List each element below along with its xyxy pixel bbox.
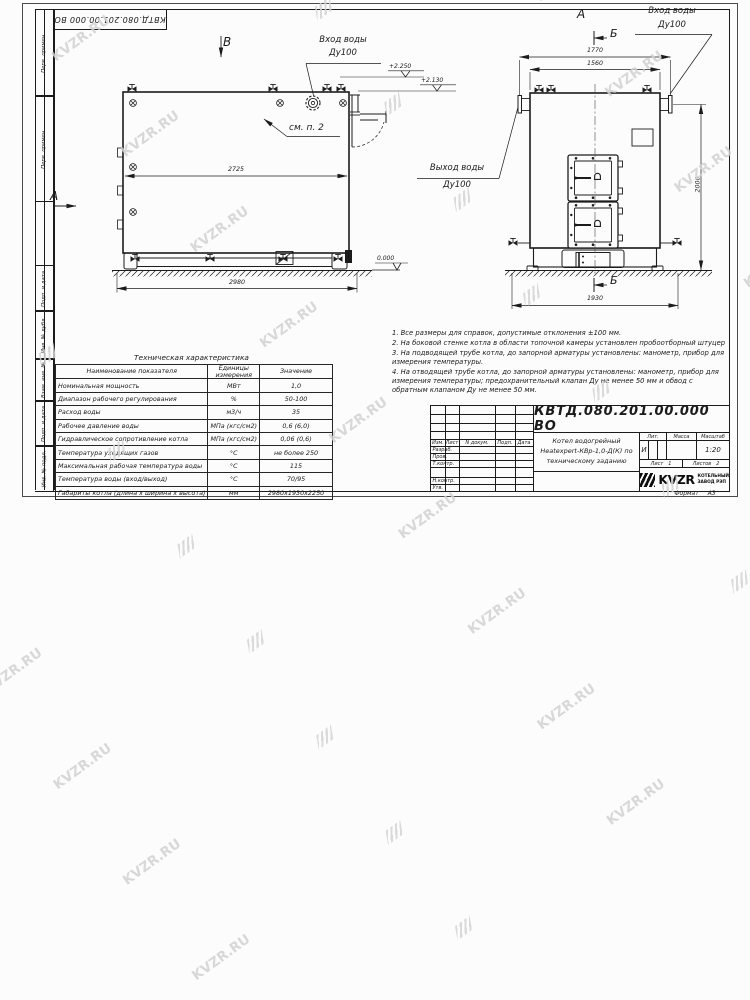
tb-scale-label: Масштаб xyxy=(696,433,729,441)
tb-product-name: Котел водогрейный Heatexpert-КВр-1,0-Д(К… xyxy=(533,433,639,471)
inlet-label-front-2: Ду100 xyxy=(633,20,711,30)
inlet-label-side-2: Ду100 xyxy=(305,48,381,58)
watermark-text: KVZR.RU xyxy=(465,585,529,638)
tb-vline xyxy=(495,406,496,491)
title-block: Изм. Лист N докум. Подп. Дата Разраб. Пр… xyxy=(430,405,730,492)
section-marker-b-bottom: Б xyxy=(610,274,618,287)
tb-hline xyxy=(431,414,533,415)
tb-sheets-cell: Листов2 xyxy=(682,459,729,467)
tb-hline xyxy=(431,467,533,468)
tb-company-cell: KVZR КОТЕЛЬНЫЙ ЗАВОД РЭП xyxy=(639,467,729,491)
tb-col-data: Дата xyxy=(515,439,533,446)
engineering-drawing-sheet: { "watermark": { "text": "KVZR.RU" }, "f… xyxy=(0,0,750,500)
tb-doc-number: КВТД.080.201.00.000 ВО xyxy=(533,406,729,433)
dim-1560: 1560 xyxy=(573,60,617,67)
dim-1930: 1930 xyxy=(573,295,617,302)
tb-scale-value: 1:20 xyxy=(696,441,729,459)
section-marker-b-top: Б xyxy=(610,27,618,40)
table-row: Габариты котла (длина х ширина х высота)… xyxy=(56,486,333,499)
table-row: Максимальная рабочая температура воды°С1… xyxy=(56,459,333,472)
table-row: Гидравлическое сопротивление котлаМПа (к… xyxy=(56,433,333,446)
table-row: Температура уходящих газов°Сне более 250 xyxy=(56,446,333,459)
kvzr-watermark-logo-icon xyxy=(316,724,333,749)
note-line: 1. Все размеры для справок, допустимые о… xyxy=(392,329,726,338)
tb-row-razrab: Разраб. xyxy=(433,447,453,453)
table-row: Расход водым3/ч35 xyxy=(56,406,333,419)
kvzr-logo-text: KVZR xyxy=(658,472,694,487)
view-marker-a-front: А xyxy=(577,7,585,21)
spec-col-units: Единицы измерения xyxy=(208,365,260,379)
outlet-label-2: Ду100 xyxy=(415,180,499,190)
tb-mass-value xyxy=(666,441,696,459)
tb-sheet-cell: Лист1 xyxy=(639,459,682,467)
tb-col-list: Лист xyxy=(445,439,459,446)
kvzr-logo-icon xyxy=(640,473,655,487)
kvzr-watermark-logo-icon xyxy=(455,915,472,940)
spec-table-title: Техническая характеристика xyxy=(55,353,328,362)
tb-vline xyxy=(515,406,516,491)
tb-row-utv: Утв. xyxy=(433,485,444,491)
kvzr-watermark-logo-icon xyxy=(177,533,194,558)
tb-lit-value: И xyxy=(639,441,648,459)
tb-lit-label: Лит. xyxy=(639,433,666,441)
inlet-label-side-1: Вход воды xyxy=(305,35,381,45)
see-note-label: см. п. 2 xyxy=(289,123,324,133)
dim-2725: 2725 xyxy=(214,166,258,173)
outlet-label-1: Выход воды xyxy=(415,163,499,173)
table-row: Температура воды (вход/выход)°С70/95 xyxy=(56,473,333,486)
spec-col-value: Значение xyxy=(260,365,333,379)
watermark-text: KVZR.RU xyxy=(0,645,45,698)
tb-vline xyxy=(459,406,460,491)
tb-hline xyxy=(431,484,533,485)
format-label: Формат А3 xyxy=(655,490,735,497)
tb-mass-label: Масса xyxy=(666,433,696,441)
kvzr-watermark-logo-icon xyxy=(731,569,748,594)
dim-1770: 1770 xyxy=(573,47,617,54)
tb-lit-cell2 xyxy=(648,441,657,459)
note-line: 3. На подводящей трубе котла, до запорно… xyxy=(392,349,726,367)
kvzr-watermark-logo-icon xyxy=(385,820,402,845)
inlet-label-front-1: Вход воды xyxy=(633,6,711,16)
side-view xyxy=(55,36,456,293)
spec-table: Наименование показателя Единицы измерени… xyxy=(55,364,333,500)
spec-header-row: Наименование показателя Единицы измерени… xyxy=(56,365,333,379)
watermark-text: KVZR.RU xyxy=(604,776,668,829)
note-line: 2. На боковой стенке котла в области топ… xyxy=(392,339,726,348)
watermark-text: KVZR.RU xyxy=(534,680,598,733)
watermark-text: KVZR.RU xyxy=(50,740,114,793)
table-row: Номинальная мощностьМВт1,0 xyxy=(56,379,333,392)
kvzr-watermark-logo-icon xyxy=(247,629,264,654)
tb-row-prov: Пров. xyxy=(433,454,448,460)
dim-2980: 2980 xyxy=(215,279,259,286)
tb-lit-cell3 xyxy=(657,441,666,459)
spec-col-name: Наименование показателя xyxy=(56,365,208,379)
dim-2000: 2000 xyxy=(695,165,702,205)
elevation-0000: 0.000 xyxy=(377,255,394,262)
elevation-2130: +2.130 xyxy=(421,77,443,84)
tb-hline xyxy=(431,431,533,432)
tb-empty-cell xyxy=(533,471,639,491)
tb-row-tkontr: Т.контр. xyxy=(433,461,455,467)
table-row: Рабочее давление водыМПа (кгс/см2)0,6 (6… xyxy=(56,419,333,432)
tb-hline xyxy=(431,423,533,424)
view-marker-a-side: А xyxy=(50,189,58,203)
watermark-text: KVZR.RU xyxy=(189,931,253,984)
company-name: КОТЕЛЬНЫЙ ЗАВОД РЭП xyxy=(697,474,729,485)
table-row: Диапазон рабочего регулирования%50-100 xyxy=(56,392,333,405)
tb-col-izm: Изм. xyxy=(431,439,445,446)
tb-col-dokum: N докум. xyxy=(459,439,495,446)
note-line: 4. На отводящей трубе котла, до запорной… xyxy=(392,368,726,395)
elevation-2250: +2.250 xyxy=(389,63,411,70)
watermark-text: KVZR.RU xyxy=(120,836,184,889)
tb-row-nkontr: Н.контр. xyxy=(433,478,455,484)
view-marker-b: В xyxy=(223,35,231,49)
technical-notes: 1. Все размеры для справок, допустимые о… xyxy=(392,329,726,396)
tb-col-podp: Подп. xyxy=(495,439,515,446)
